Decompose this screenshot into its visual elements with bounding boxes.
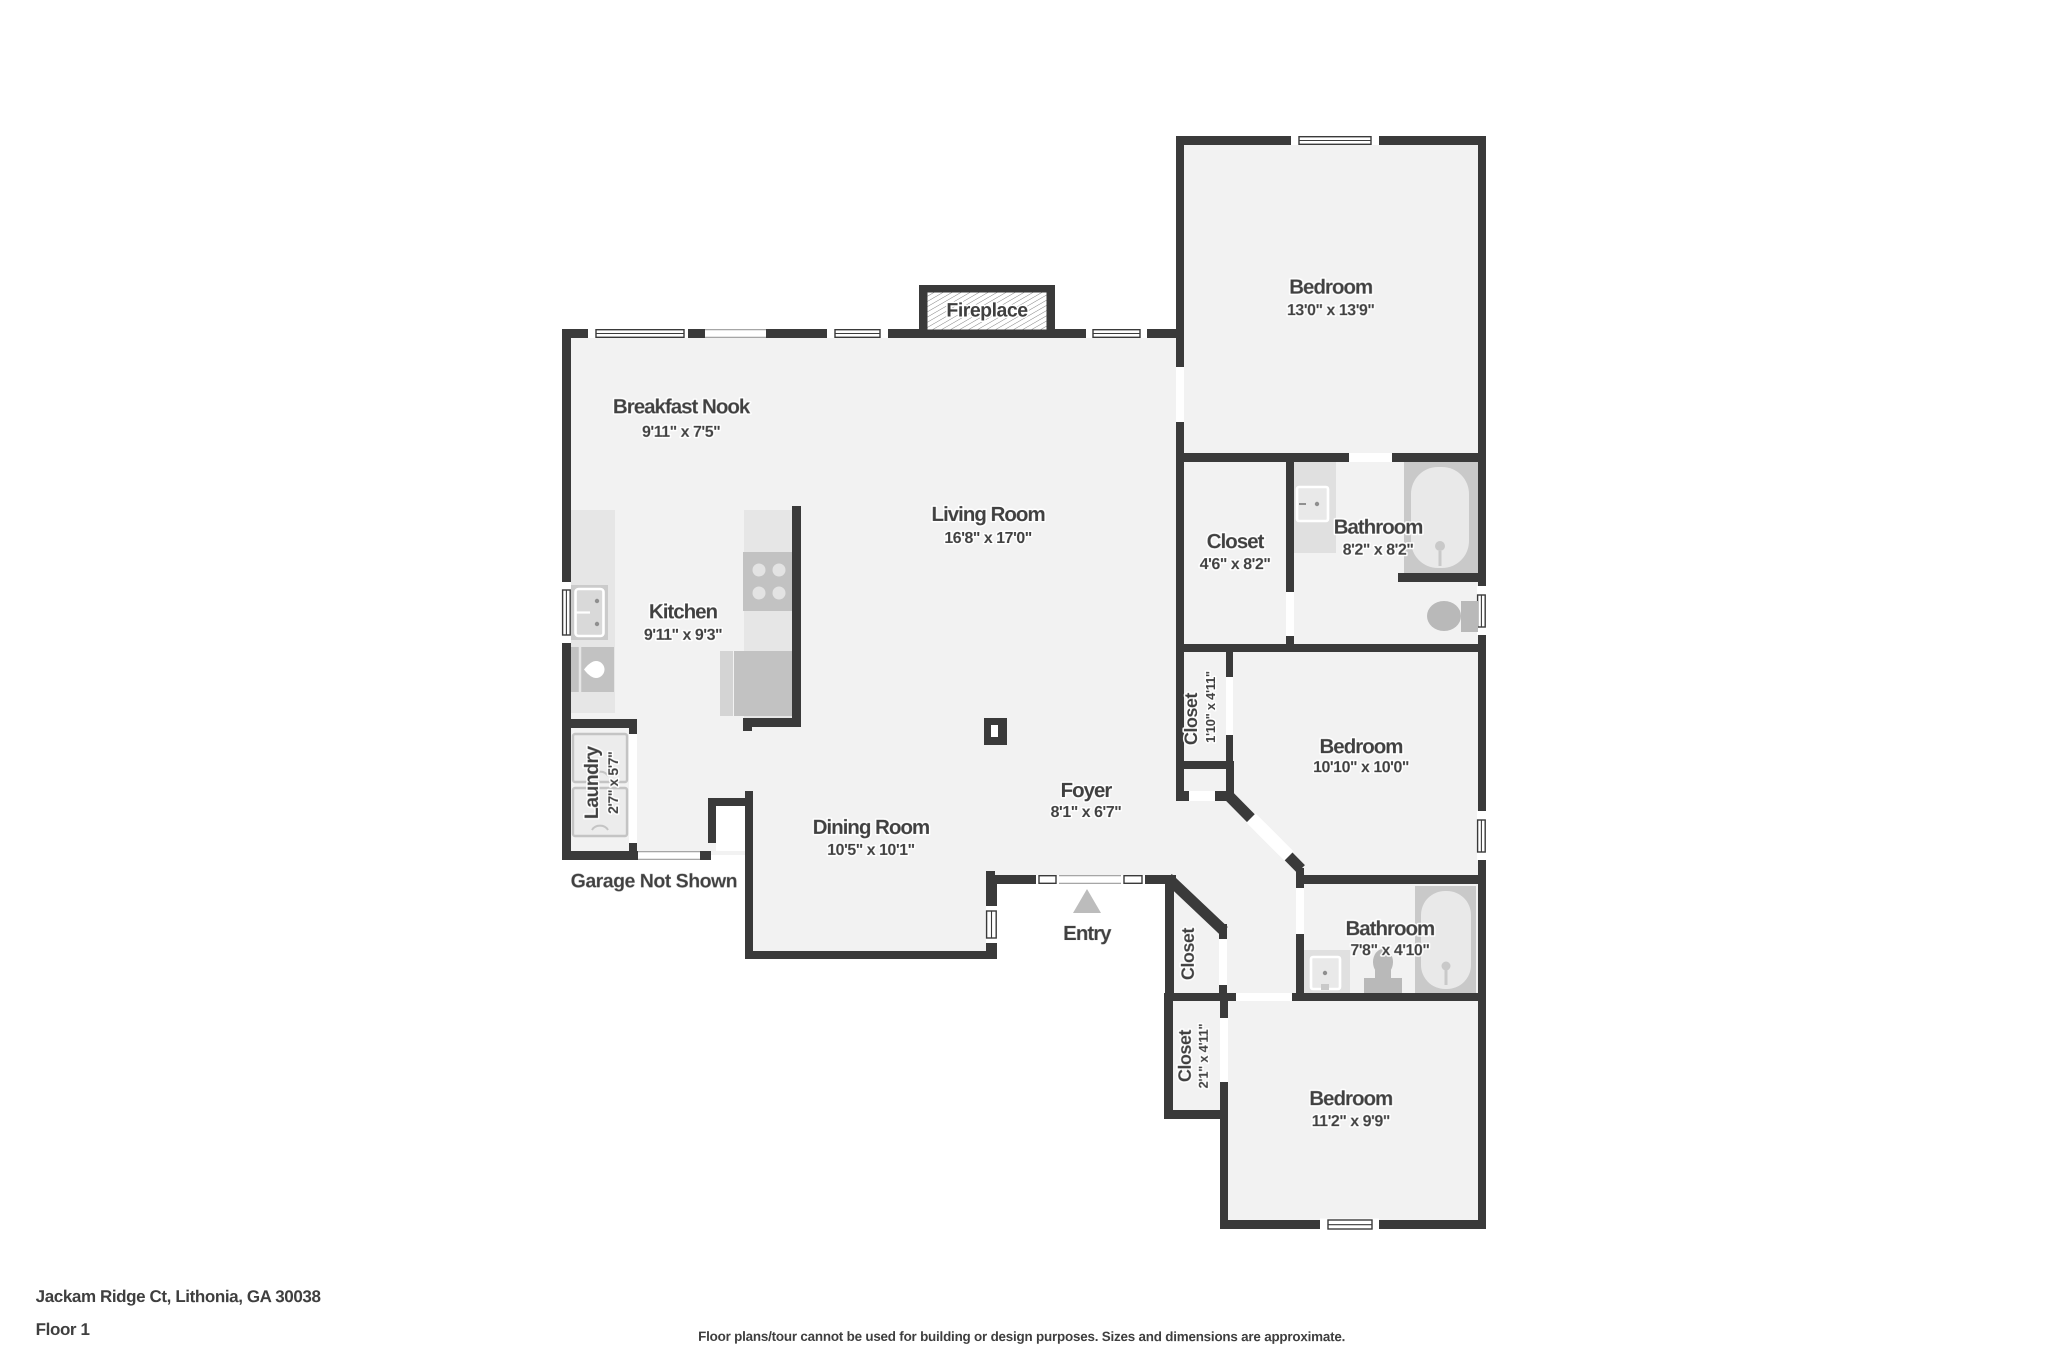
svg-text:Fireplace: Fireplace bbox=[946, 300, 1028, 322]
svg-text:Closet: Closet bbox=[1181, 693, 1201, 746]
svg-text:Garage Not Shown: Garage Not Shown bbox=[571, 870, 737, 892]
svg-text:Living Room: Living Room bbox=[932, 503, 1045, 526]
svg-text:8'2" x 8'2": 8'2" x 8'2" bbox=[1343, 542, 1414, 559]
svg-text:Floor 1: Floor 1 bbox=[36, 1320, 90, 1339]
svg-text:Closet: Closet bbox=[1207, 530, 1265, 553]
svg-text:9'11" x 9'3": 9'11" x 9'3" bbox=[644, 627, 722, 644]
svg-text:2'7" x 5'7": 2'7" x 5'7" bbox=[605, 752, 621, 814]
svg-text:Dining Room: Dining Room bbox=[813, 816, 930, 839]
svg-text:Bathroom: Bathroom bbox=[1345, 917, 1434, 940]
svg-text:10'5" x 10'1": 10'5" x 10'1" bbox=[827, 842, 914, 859]
svg-text:11'2" x 9'9": 11'2" x 9'9" bbox=[1312, 1113, 1390, 1130]
svg-text:Breakfast Nook: Breakfast Nook bbox=[613, 395, 751, 418]
svg-text:Kitchen: Kitchen bbox=[649, 600, 718, 623]
svg-text:10'10" x 10'0": 10'10" x 10'0" bbox=[1313, 759, 1409, 776]
svg-text:Entry: Entry bbox=[1063, 922, 1112, 945]
svg-text:Bathroom: Bathroom bbox=[1334, 516, 1423, 539]
svg-text:Bedroom: Bedroom bbox=[1289, 276, 1372, 299]
svg-text:Closet: Closet bbox=[1175, 1030, 1195, 1083]
svg-text:4'6" x 8'2": 4'6" x 8'2" bbox=[1200, 556, 1271, 573]
svg-text:Foyer: Foyer bbox=[1061, 779, 1113, 802]
svg-text:1'10" x 4'11": 1'10" x 4'11" bbox=[1203, 671, 1218, 743]
svg-text:8'1" x 6'7": 8'1" x 6'7" bbox=[1051, 804, 1122, 821]
svg-text:Laundry: Laundry bbox=[581, 746, 603, 819]
svg-text:Bedroom: Bedroom bbox=[1319, 735, 1402, 758]
svg-text:Floor plans/tour cannot be use: Floor plans/tour cannot be used for buil… bbox=[698, 1329, 1345, 1344]
svg-text:9'11" x 7'5": 9'11" x 7'5" bbox=[642, 424, 720, 441]
svg-text:13'0" x 13'9": 13'0" x 13'9" bbox=[1287, 302, 1374, 319]
svg-text:Jackam Ridge Ct, Lithonia, GA: Jackam Ridge Ct, Lithonia, GA 30038 bbox=[36, 1287, 321, 1306]
svg-text:Closet: Closet bbox=[1178, 928, 1198, 981]
svg-text:Bedroom: Bedroom bbox=[1309, 1087, 1392, 1110]
svg-text:7'8" x 4'10": 7'8" x 4'10" bbox=[1350, 942, 1429, 959]
svg-text:2'1" x 4'11": 2'1" x 4'11" bbox=[1196, 1024, 1211, 1089]
svg-text:16'8" x 17'0": 16'8" x 17'0" bbox=[944, 530, 1031, 547]
